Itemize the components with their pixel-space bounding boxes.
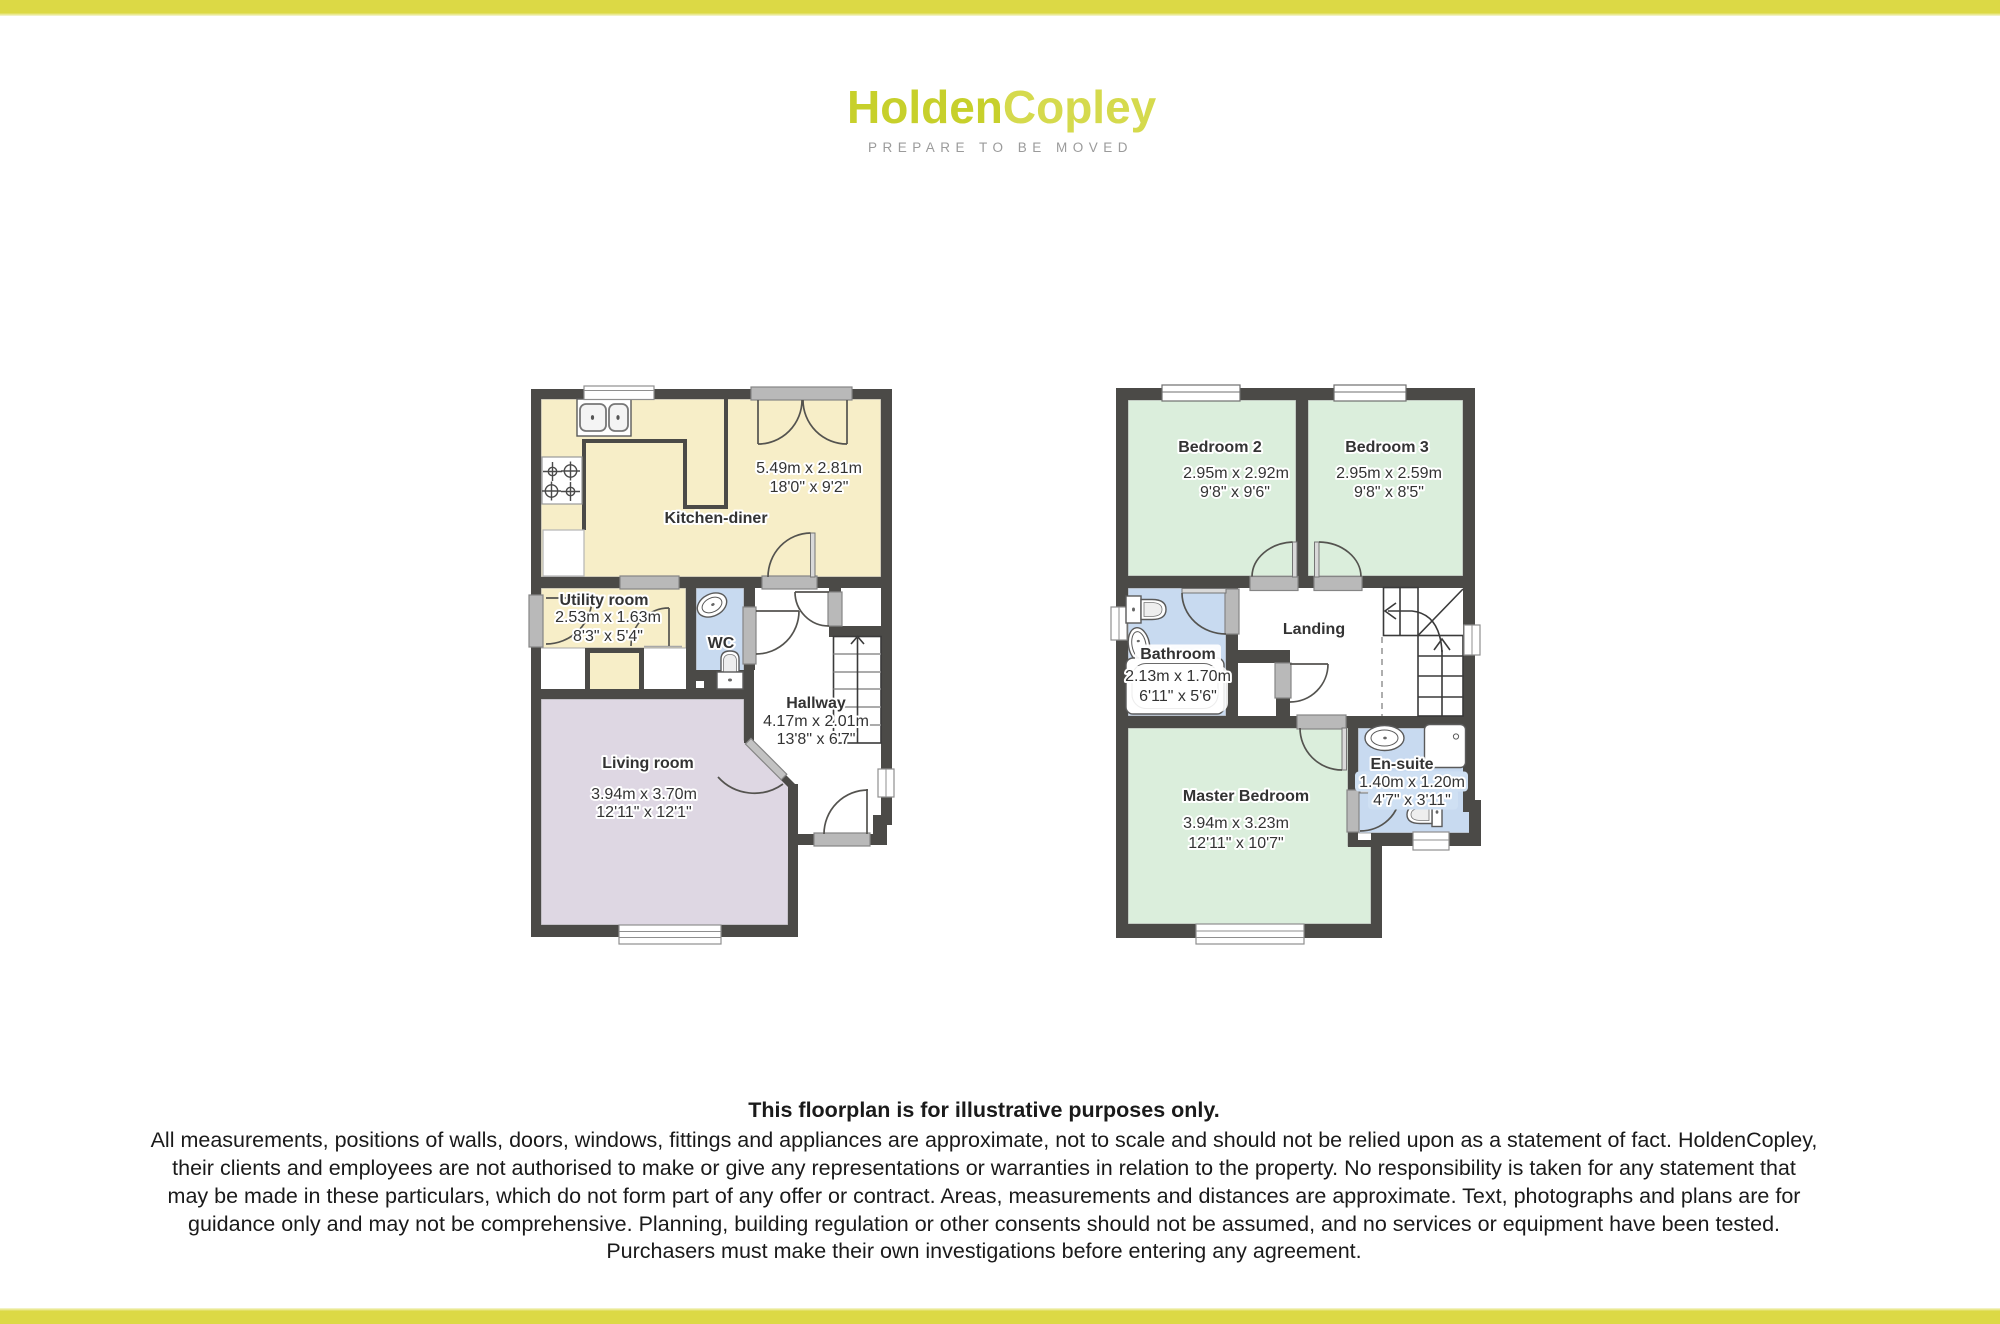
svg-text:6'11" x 5'6": 6'11" x 5'6" (1139, 688, 1217, 705)
svg-text:Kitchen-diner: Kitchen-diner (664, 510, 767, 527)
svg-text:Master Bedroom: Master Bedroom (1183, 788, 1309, 805)
svg-text:Purchasers must make their own: Purchasers must make their own investiga… (606, 1239, 1361, 1263)
svg-text:8'3" x 5'4": 8'3" x 5'4" (573, 628, 643, 645)
svg-text:12'11" x 12'1": 12'11" x 12'1" (596, 804, 691, 821)
svg-text:4.17m x 2.01m: 4.17m x 2.01m (763, 713, 869, 730)
svg-text:WC: WC (708, 635, 735, 652)
svg-text:13'8" x 6'7": 13'8" x 6'7" (777, 731, 856, 748)
svg-text:5.49m x 2.81m: 5.49m x 2.81m (756, 460, 862, 477)
svg-text:2.95m x 2.59m: 2.95m x 2.59m (1336, 465, 1442, 482)
svg-text:Bedroom 3: Bedroom 3 (1345, 439, 1429, 456)
svg-text:4'7" x 3'11": 4'7" x 3'11" (1373, 792, 1451, 809)
svg-text:9'8" x 9'6": 9'8" x 9'6" (1200, 484, 1270, 501)
svg-text:3.94m x 3.23m: 3.94m x 3.23m (1183, 815, 1289, 832)
svg-text:En-suite: En-suite (1370, 756, 1433, 773)
svg-text:Landing: Landing (1283, 621, 1345, 638)
svg-text:2.95m x 2.92m: 2.95m x 2.92m (1183, 465, 1289, 482)
svg-text:12'11" x 10'7": 12'11" x 10'7" (1188, 835, 1283, 852)
svg-text:Utility room: Utility room (560, 592, 649, 609)
svg-text:This floorplan is for illustra: This floorplan is for illustrative purpo… (748, 1098, 1219, 1122)
svg-text:1.40m x 1.20m: 1.40m x 1.20m (1359, 774, 1465, 791)
svg-text:HoldenCopley: HoldenCopley (847, 81, 1157, 133)
svg-text:their clients and employees ar: their clients and employees are not auth… (172, 1156, 1796, 1180)
svg-text:guidance only and may not be c: guidance only and may not be comprehensi… (188, 1212, 1780, 1236)
svg-text:Hallway: Hallway (786, 695, 846, 712)
svg-text:3.94m x 3.70m: 3.94m x 3.70m (591, 786, 697, 803)
svg-text:Bedroom 2: Bedroom 2 (1178, 439, 1262, 456)
svg-text:18'0" x 9'2": 18'0" x 9'2" (770, 479, 849, 496)
svg-text:2.53m x 1.63m: 2.53m x 1.63m (555, 609, 661, 626)
svg-text:Living room: Living room (602, 755, 694, 772)
svg-text:2.13m x 1.70m: 2.13m x 1.70m (1125, 668, 1231, 685)
svg-text:PREPARE TO BE MOVED: PREPARE TO BE MOVED (868, 140, 1133, 155)
svg-text:9'8" x 8'5": 9'8" x 8'5" (1354, 484, 1424, 501)
svg-text:All measurements, positions of: All measurements, positions of walls, do… (151, 1128, 1818, 1152)
svg-text:Bathroom: Bathroom (1140, 646, 1216, 663)
svg-text:may be made in these particula: may be made in these particulars, which … (168, 1184, 1801, 1208)
